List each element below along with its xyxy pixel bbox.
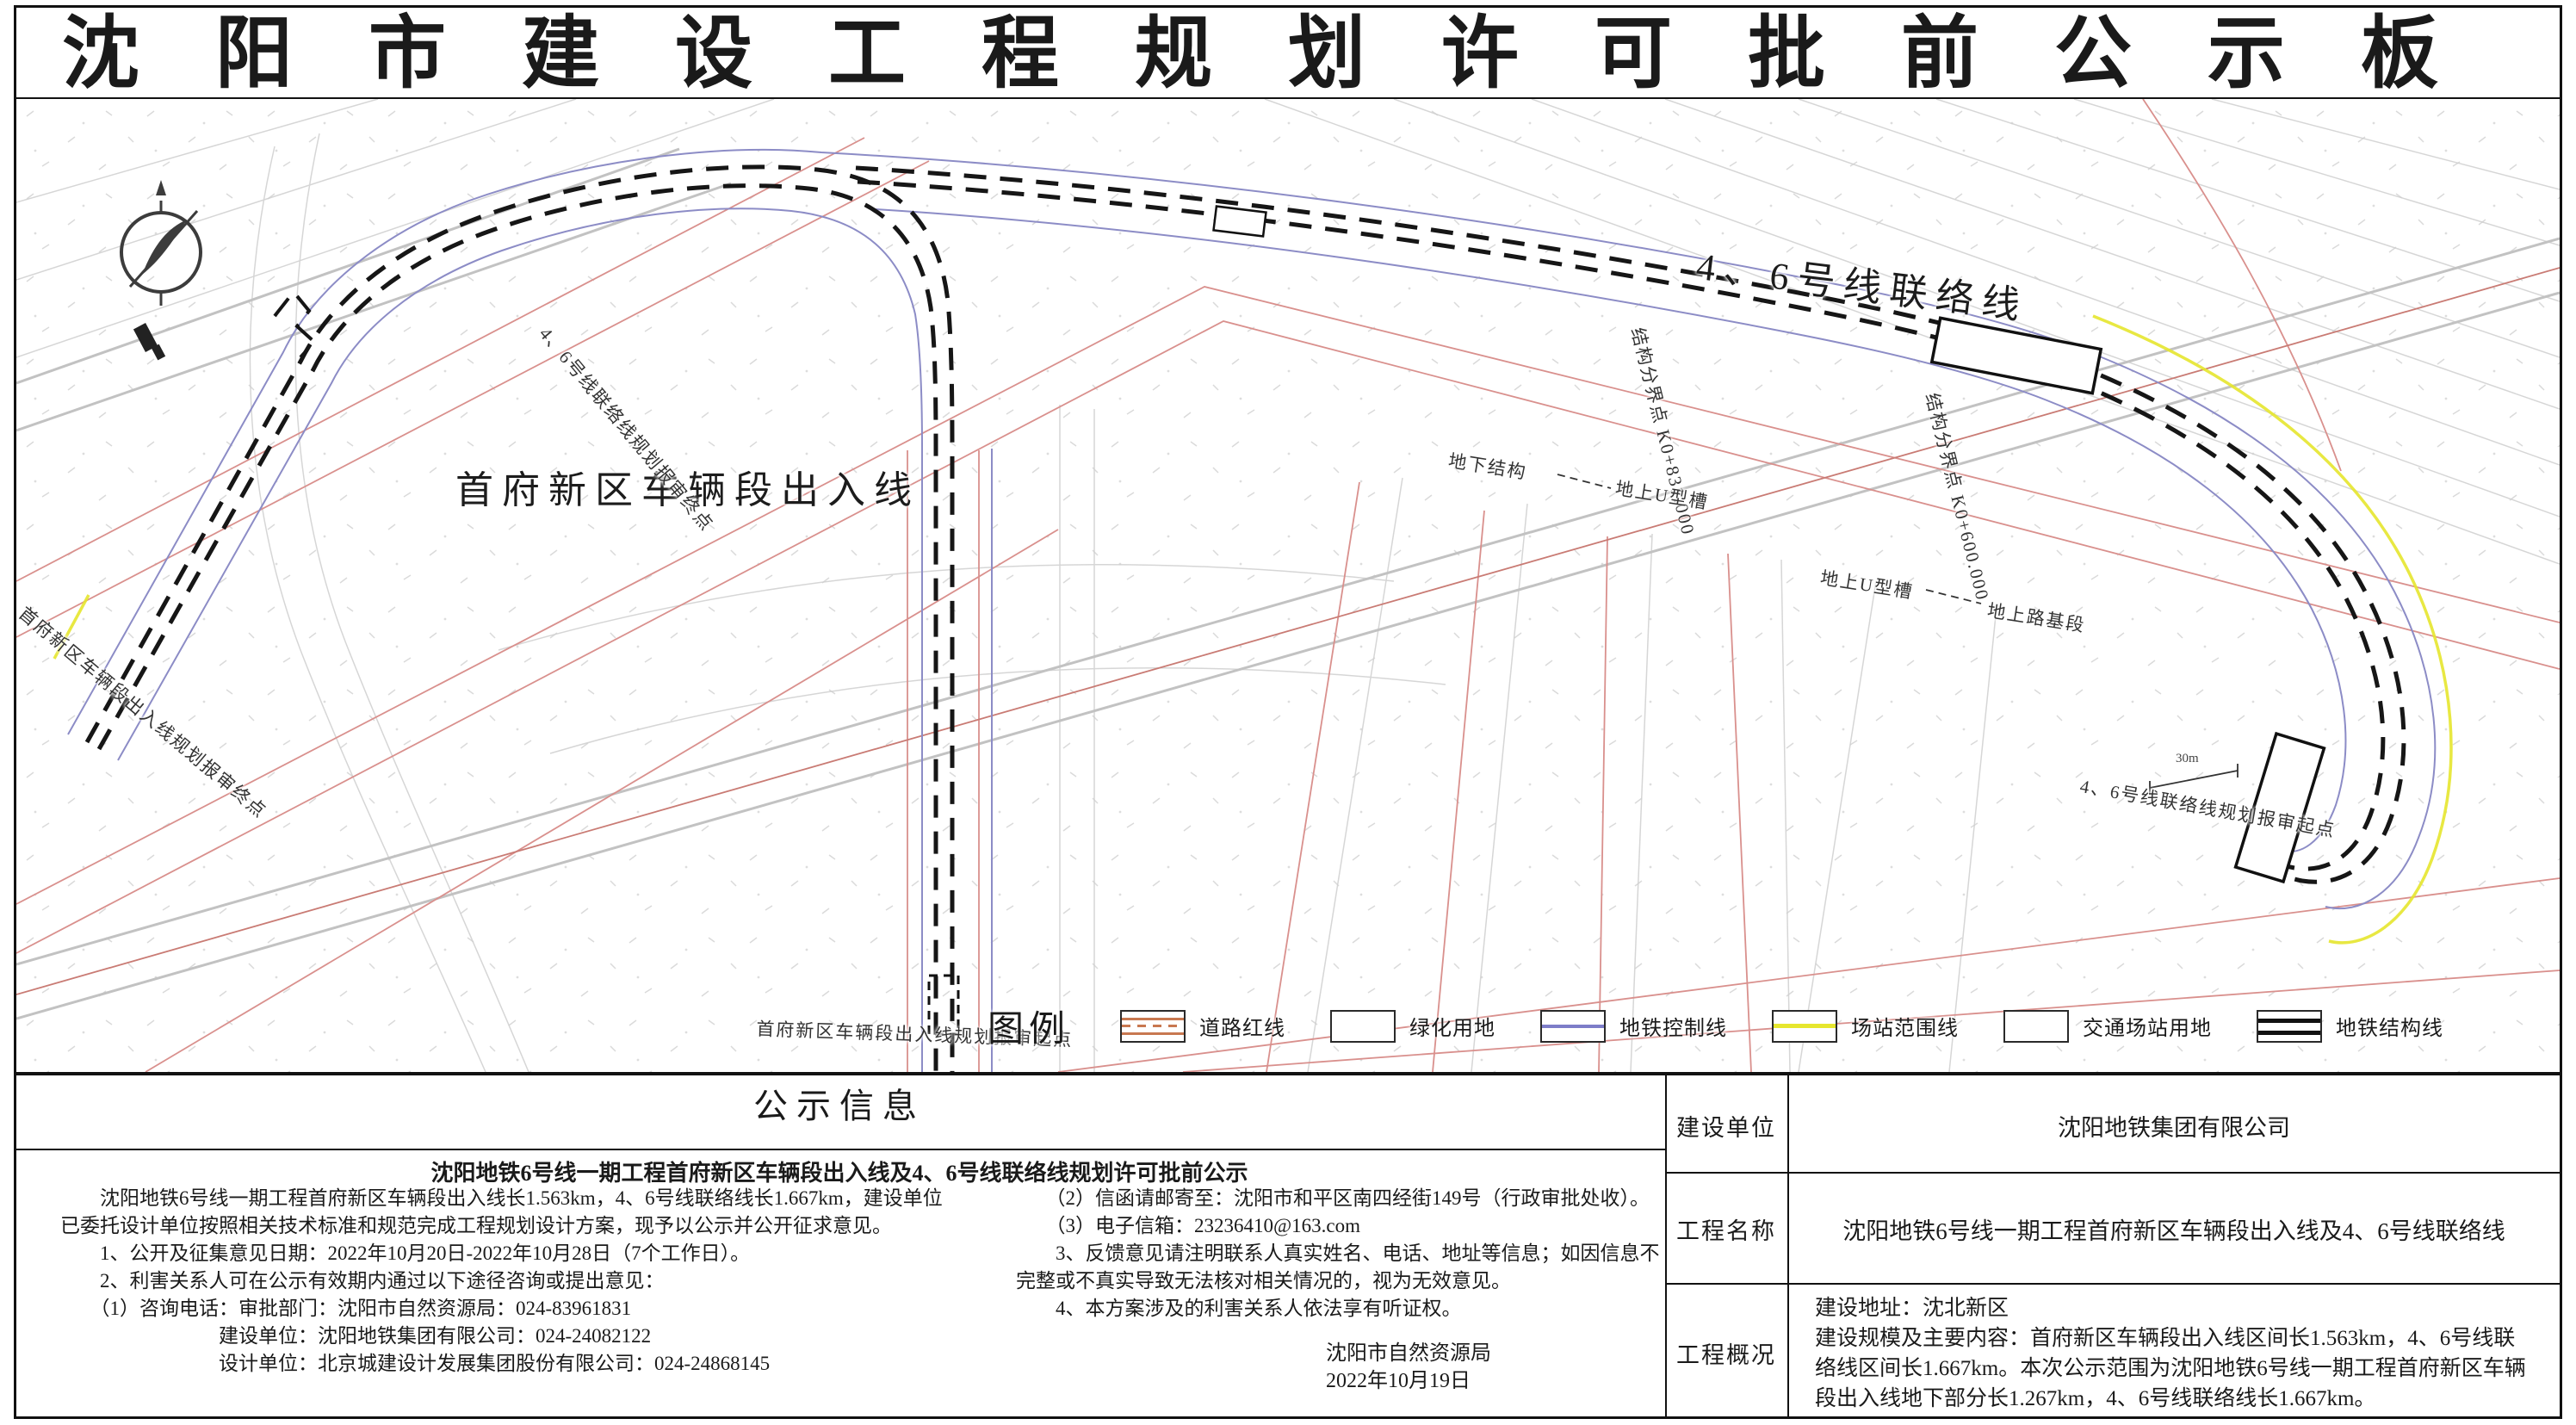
sheet-border (14, 5, 2562, 1419)
notice-board-sheet: 沈阳市建设工程规划许可批前公示板 (0, 0, 2576, 1425)
